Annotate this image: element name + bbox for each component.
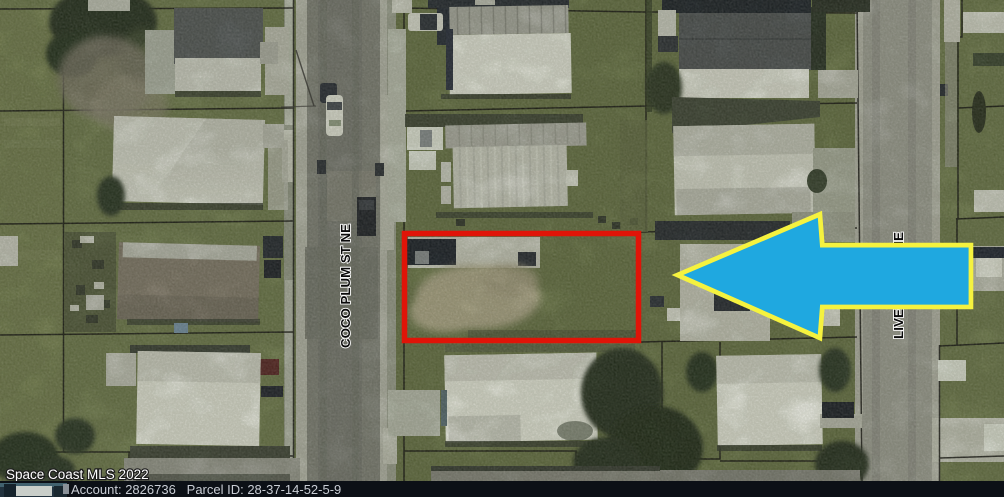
svg-text:COCO PLUM ST NE: COCO PLUM ST NE [339,224,353,348]
svg-text:Account: 2826736 Parcel ID:: Account: 2826736 Parcel ID: 28-37-14-52-… [71,482,341,497]
svg-text:Space Coast MLS 2022: Space Coast MLS 2022 [6,467,149,482]
